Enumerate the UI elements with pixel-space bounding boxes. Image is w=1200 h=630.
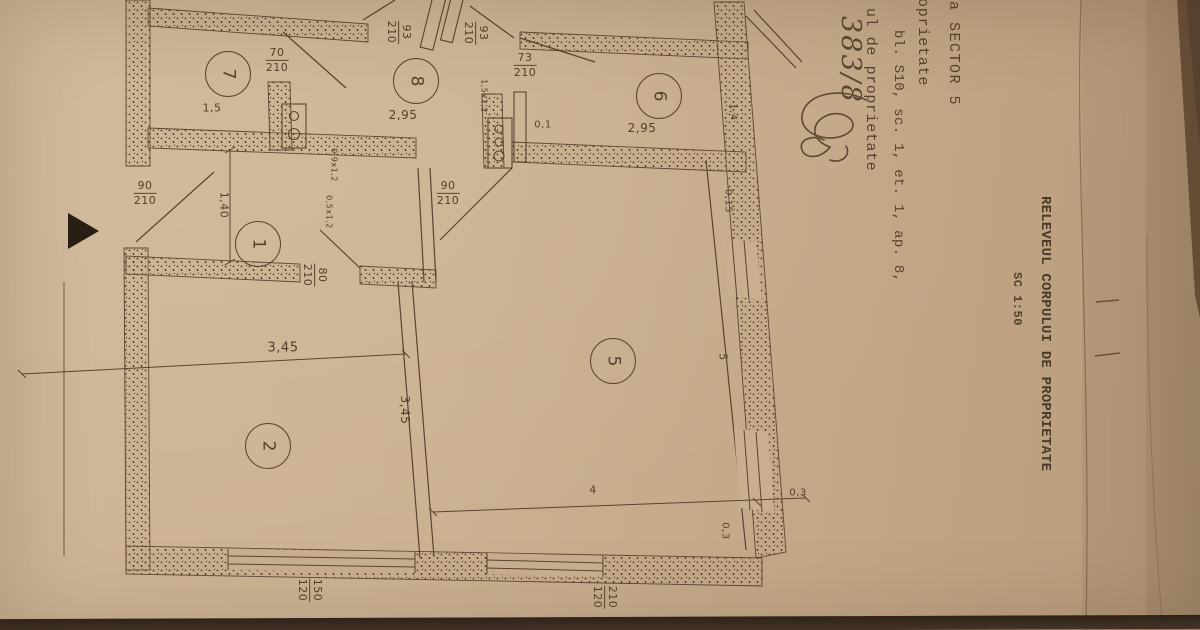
dimension-label: 1,5x1,2 [480, 79, 489, 113]
opening-size-label: 73210 [514, 52, 537, 78]
room-number-circle: 6 [636, 73, 682, 119]
page-edge-shadow-region [1146, 0, 1200, 630]
room-number-circle: 1 [235, 221, 281, 267]
opening-size-label: 70210 [266, 47, 289, 73]
opening-size-label: 80210 [302, 264, 328, 287]
opening-size-label: 90210 [134, 180, 157, 206]
typed-header-line: ala SECTOR 5 [945, 0, 962, 106]
dimension-label: 2,95 [389, 108, 418, 122]
dimension-label: 2,95 [628, 121, 657, 135]
dimension-label: 0,3 [789, 488, 806, 499]
dimension-label: 1,4 [728, 103, 739, 120]
opening-size-label: 150120 [297, 579, 323, 602]
room-number: 6 [649, 91, 669, 102]
document-title: RELEVEUL CORPULUI DE PROPRIETATE [1037, 196, 1053, 471]
room-number: 8 [406, 76, 426, 87]
opening-size-label: 210120 [592, 586, 618, 609]
room-number-circle: 7 [205, 51, 251, 97]
room-number: 7 [218, 69, 238, 80]
dimension-label: 0,9x1,2 [330, 148, 339, 182]
dimension-label: 0,15 [723, 189, 734, 213]
opening-size-label: 93210 [463, 22, 489, 45]
dimension-label: 0,5x1,2 [325, 195, 334, 229]
opening-size-label: 90210 [437, 180, 460, 206]
dimension-label: 3,45 [268, 341, 299, 356]
room-number: 5 [603, 356, 623, 367]
room-number-circle: 5 [590, 338, 636, 384]
room-number-circle: 8 [393, 58, 439, 104]
room-number: 1 [248, 239, 268, 250]
typed-header-line: bl. S10, sc. 1, et. 1, ap. 8, [890, 30, 906, 282]
scale-label: SC 1:50 [1010, 272, 1024, 326]
dimension-label: 0,3 [720, 522, 731, 539]
dimension-label: 3,45 [398, 396, 412, 425]
room-number: 2 [258, 441, 278, 452]
dimension-label: 0,1 [534, 120, 551, 131]
opening-size-label: 93210 [386, 21, 412, 44]
dimension-label: 1,40 [218, 192, 231, 219]
dimension-label: 4 [589, 484, 597, 497]
typed-header-line: oprietate [914, 0, 931, 86]
dimension-label: 1,5 [203, 102, 222, 115]
room-number-circle: 2 [245, 423, 291, 469]
handwritten-case-number: 383/8 [835, 16, 866, 104]
dimension-label: 5 [717, 353, 730, 361]
photo-of-floor-plan-document: 7861257021093210932107321090210902108021… [0, 0, 1200, 630]
